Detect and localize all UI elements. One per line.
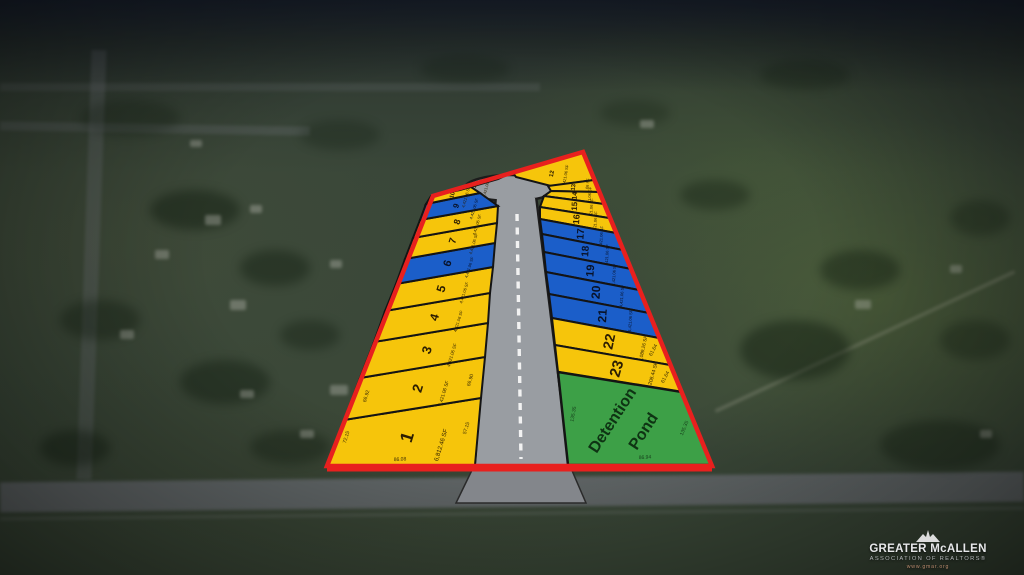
lot-number-17: 17 (575, 228, 587, 240)
plat-overlay: 16,812.46 SF24,421.06 SF34,421.06 SF44,4… (0, 0, 1024, 575)
logo-url: www.gmar.org (840, 564, 1016, 571)
lot-number-19: 19 (584, 264, 597, 277)
logo-name: GREATER McALLEN (840, 542, 1016, 556)
lot-number-20: 20 (589, 285, 604, 300)
lot-number-13: 13 (571, 183, 578, 191)
lot-number-21: 21 (595, 308, 610, 323)
mountain-icon (913, 530, 943, 543)
dim-label-2: 86.08 (394, 456, 407, 463)
road-apron (456, 466, 586, 503)
logo-subtitle: ASSOCIATION OF REALTORS® (840, 556, 1016, 563)
lot-number-15: 15 (570, 201, 580, 211)
lot-number-16: 16 (571, 214, 582, 225)
lot-number-14: 14 (572, 192, 580, 200)
lot-number-18: 18 (580, 245, 592, 257)
realtor-logo: GREATER McALLEN ASSOCIATION OF REALTORS®… (840, 530, 1016, 570)
detention-pond (558, 372, 712, 465)
dim-label-9: 86.94 (639, 454, 652, 461)
aerial-photo: 16,812.46 SF24,421.06 SF34,421.06 SF44,4… (0, 0, 1024, 575)
